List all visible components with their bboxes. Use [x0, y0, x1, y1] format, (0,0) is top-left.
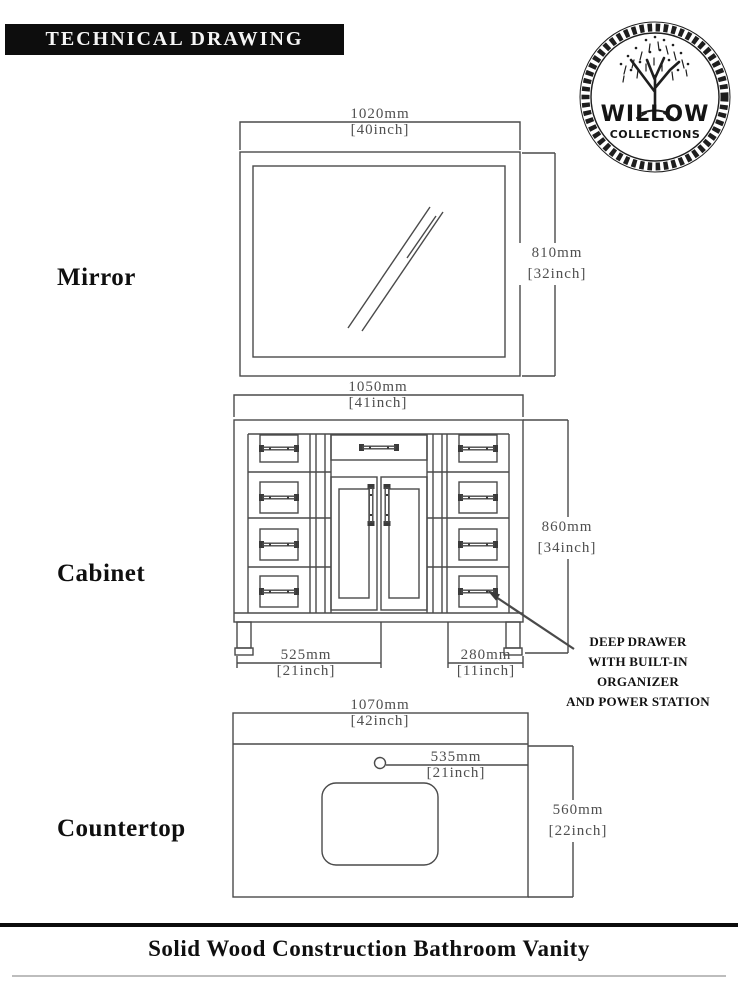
cabinet-label: Cabinet — [57, 560, 145, 588]
cabinet-left-section-dimension: 525mm [21inch] — [246, 647, 366, 679]
footer-divider — [0, 923, 738, 927]
mirror-width-mm: 1020mm — [320, 106, 440, 122]
callout-line-2: WITH BUILT-IN — [548, 652, 728, 672]
countertop-depth-mm: 560mm — [532, 800, 624, 821]
cabinet-height-mm: 860mm — [524, 517, 610, 538]
faucet-hole — [375, 758, 386, 769]
mirror-reflection-lines — [348, 207, 443, 331]
callout-line-4: AND POWER STATION — [548, 692, 728, 712]
mirror-height-dimension: 810mm [32inch] — [514, 243, 600, 285]
faucet-offset-mm: 535mm — [396, 749, 516, 765]
callout-line-1: DEEP DRAWER — [548, 632, 728, 652]
cabinet-width-mm: 1050mm — [318, 379, 438, 395]
faucet-offset-dimension: 535mm [21inch] — [396, 749, 516, 781]
cabinet-height-inch: [34inch] — [524, 538, 610, 559]
countertop-label: Countertop — [57, 815, 186, 843]
callout-line-3: ORGANIZER — [548, 672, 728, 692]
right-drawer-column — [458, 435, 498, 607]
center-drawer-front — [331, 435, 427, 460]
sink-cutout — [322, 783, 438, 865]
mirror-drawing — [240, 152, 520, 376]
left-drawer-column — [259, 435, 299, 607]
mirror-height-mm: 810mm — [514, 243, 600, 264]
cabinet-left-mm: 525mm — [246, 647, 366, 663]
cabinet-width-inch: [41inch] — [318, 395, 438, 411]
cabinet-right-section-dimension: 280mm [11inch] — [426, 647, 546, 679]
countertop-width-inch: [42inch] — [320, 713, 440, 729]
mirror-height-inch: [32inch] — [514, 264, 600, 285]
cabinet-right-inch: [11inch] — [426, 663, 546, 679]
mirror-width-dimension: 1020mm [40inch] — [320, 106, 440, 138]
mirror-width-inch: [40inch] — [320, 122, 440, 138]
cabinet-height-dimension: 860mm [34inch] — [524, 517, 610, 559]
cabinet-left-inch: [21inch] — [246, 663, 366, 679]
countertop-width-mm: 1070mm — [320, 697, 440, 713]
footer-thin-line — [12, 975, 726, 977]
countertop-width-dimension: 1070mm [42inch] — [320, 697, 440, 729]
countertop-depth-dimension: 560mm [22inch] — [532, 800, 624, 842]
countertop-drawing — [233, 713, 528, 897]
cabinet-width-dimension: 1050mm [41inch] — [318, 379, 438, 411]
footer-title: Solid Wood Construction Bathroom Vanity — [0, 936, 738, 962]
faucet-offset-inch: [21inch] — [396, 765, 516, 781]
page-root: TECHNICAL DRAWING — [0, 0, 738, 990]
deep-drawer-callout: DEEP DRAWER WITH BUILT-IN ORGANIZER AND … — [548, 632, 728, 712]
cabinet-right-mm: 280mm — [426, 647, 546, 663]
cabinet-doors — [331, 477, 427, 610]
countertop-depth-inch: [22inch] — [532, 821, 624, 842]
cabinet-drawing — [234, 420, 523, 655]
mirror-label: Mirror — [57, 264, 136, 292]
